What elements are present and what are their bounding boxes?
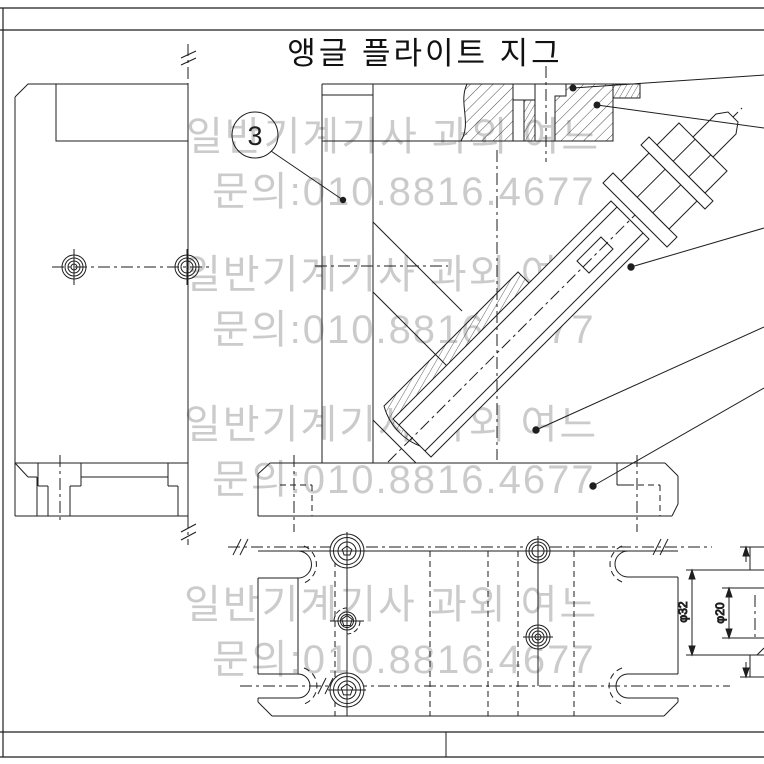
left-view-base-slots <box>15 455 178 524</box>
drawing-sheet: 일반기계기사 과외 여느 문의:010.8816.4677 일반기계기사 과외 … <box>0 0 764 764</box>
cap-screw-top-view <box>523 536 553 566</box>
leader-dot <box>340 197 346 203</box>
drawing-title: 앵글 플라이트 지그 <box>287 36 562 71</box>
balloon-number: 3 <box>247 121 262 151</box>
cap-screw-top-view <box>328 532 366 570</box>
leader-dot <box>594 102 600 108</box>
leader-line <box>593 388 764 486</box>
leader-line <box>573 75 764 88</box>
dim-text-phi20: φ20 <box>713 602 727 623</box>
hatched-section-b <box>555 84 613 141</box>
dimension-phi20: φ20 <box>713 588 732 638</box>
leader-dot <box>570 85 576 91</box>
plan-outline <box>258 551 678 716</box>
plan-centerlines <box>228 539 730 716</box>
clamp-slot-top-left <box>258 546 316 583</box>
watermark-text: 문의:010.8816.4677 <box>212 170 596 214</box>
dim-text-phi32: φ32 <box>676 601 690 622</box>
left-view-outline <box>15 84 188 516</box>
dimension-phi32: φ32 <box>676 570 695 655</box>
watermark-text: 문의:010.8816.4677 <box>212 458 596 502</box>
partial-section-view: φ32 φ20 <box>676 547 764 677</box>
hatched-rib-strip <box>524 100 535 141</box>
hatched-end-strip <box>613 84 640 98</box>
watermark-text: 일반기계기사 과외 여느 <box>184 583 598 627</box>
hatched-section-a <box>461 84 513 141</box>
leader-dot <box>590 483 596 489</box>
left-side-view <box>15 44 210 545</box>
leader-dot <box>533 427 539 433</box>
leader-line <box>631 228 764 267</box>
leader-dot <box>628 264 634 270</box>
engineering-drawing-canvas: 일반기계기사 과외 여느 문의:010.8816.4677 일반기계기사 과외 … <box>0 0 764 764</box>
